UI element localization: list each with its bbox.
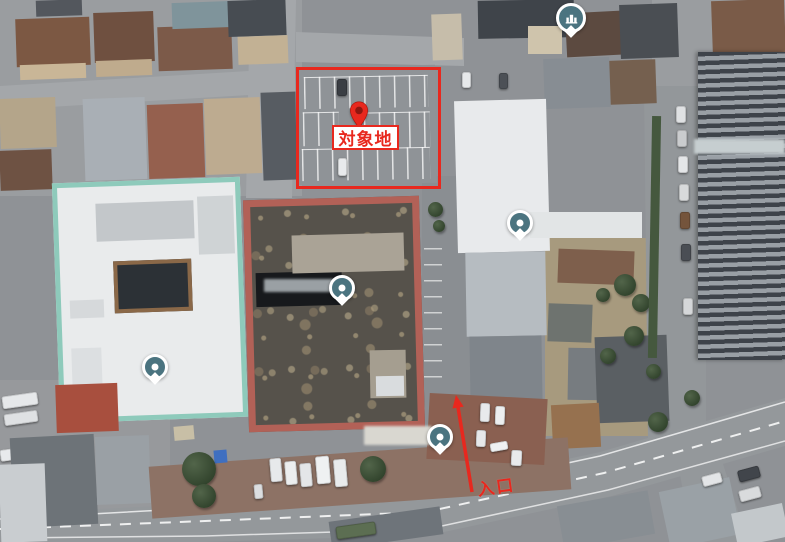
- poi-marker[interactable]: [507, 210, 533, 236]
- poi-marker[interactable]: [142, 354, 168, 380]
- lodging-icon: [565, 12, 578, 25]
- poi-marker[interactable]: [427, 424, 453, 450]
- lodging-marker[interactable]: [556, 3, 586, 33]
- poi-marker-layer: [0, 0, 785, 542]
- poi-marker[interactable]: [329, 275, 355, 301]
- aerial-map[interactable]: 対象地 入口: [0, 0, 785, 542]
